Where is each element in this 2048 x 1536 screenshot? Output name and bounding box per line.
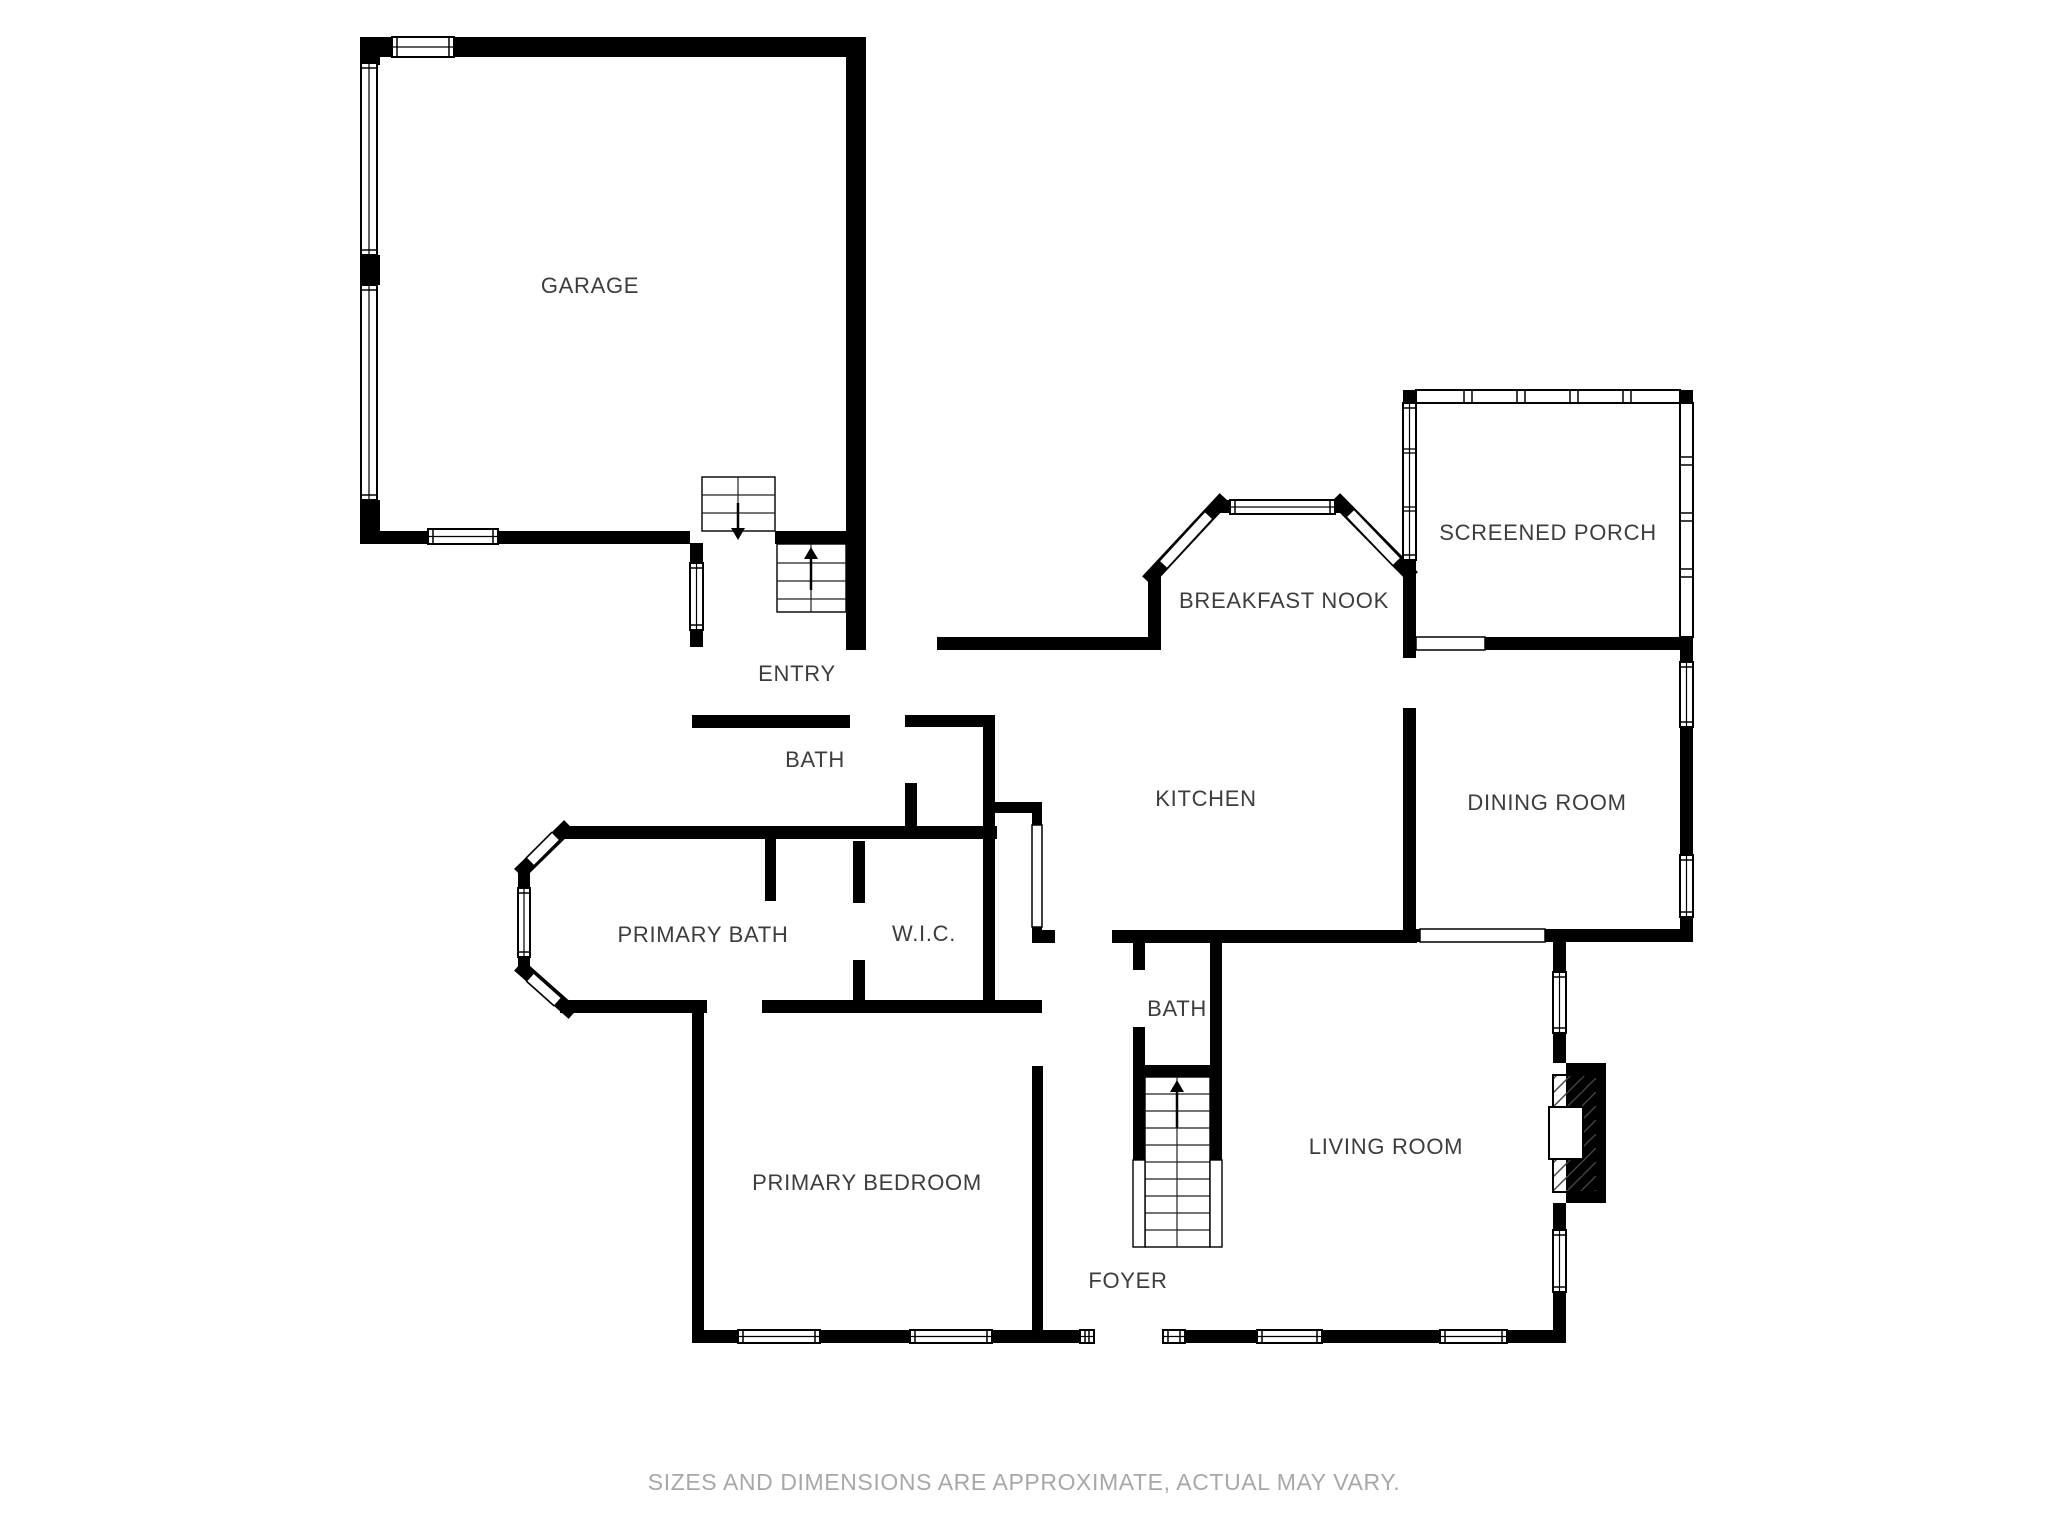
wall [692,1330,738,1343]
wall [692,1013,704,1342]
wall [560,826,997,839]
wall [917,715,993,727]
wall [1403,708,1416,942]
room-label-living-room: LIVING ROOM [1309,1134,1463,1160]
disclaimer-text: SIZES AND DIMENSIONS ARE APPROXIMATE, AC… [648,1469,1400,1496]
floor-plan: GARAGE ENTRY BATH BREAKFAST NOOK SCREENE… [0,0,2048,1536]
wall [1210,1077,1222,1160]
room-label-bath-lower: BATH [1147,996,1207,1022]
screen-wall [1416,390,1680,403]
wall [762,1000,1042,1013]
wall [905,715,917,727]
fireplace-firebox [1549,1107,1583,1159]
wall [846,37,866,650]
wall [1680,727,1693,855]
room-label-wic: W.I.C. [892,921,956,947]
wall [1032,802,1042,825]
room-label-bath-upper: BATH [785,747,845,773]
wall [1032,927,1042,943]
room-label-primary-bath: PRIMARY BATH [618,922,789,948]
wall [360,255,380,285]
room-label-breakfast-nook: BREAKFAST NOOK [1179,588,1389,614]
room-label-screened-porch: SCREENED PORCH [1439,520,1657,546]
wall [360,37,380,65]
room-label-garage: GARAGE [541,273,639,299]
wall [1133,943,1145,970]
wall [1133,1065,1222,1077]
wall [992,1330,1080,1343]
stair-arrow [731,528,745,540]
angled-window-core [1350,513,1397,562]
screen-wall [1680,403,1693,637]
wall [820,1330,910,1343]
wall [560,1000,707,1013]
wall [1112,930,1417,943]
wall [1403,390,1416,403]
floor-plan-canvas [0,0,2048,1536]
wall [1553,1203,1566,1230]
wall [1545,929,1693,942]
cased-opening [1032,825,1042,927]
wall [1485,637,1680,650]
wall [1210,943,1222,1077]
wall [853,841,865,903]
wall [775,531,846,544]
wall [1148,573,1161,650]
wall [983,715,995,839]
wall [1185,1330,1257,1343]
wall [983,839,995,1000]
cased-opening [1420,929,1545,942]
cased-opening [1416,637,1485,650]
wall [765,839,776,901]
wall [1553,942,1566,972]
room-label-kitchen: KITCHEN [1155,786,1256,812]
angled-window-core [1163,515,1209,565]
wall [1032,1066,1043,1342]
wall [1403,650,1416,658]
wall [1133,1077,1145,1160]
wall [692,715,850,728]
wall [1322,1330,1440,1343]
wall [690,543,703,563]
wall [1680,390,1693,403]
wall [690,630,703,647]
wall [1553,1292,1566,1342]
wall [1553,1033,1566,1063]
room-label-primary-bedroom: PRIMARY BEDROOM [752,1170,982,1196]
room-label-entry: ENTRY [758,661,836,687]
stair-rail [1133,1160,1145,1247]
wall [937,637,1161,650]
room-label-dining-room: DINING ROOM [1467,790,1626,816]
wall [360,531,690,544]
stair-rail [1210,1160,1222,1247]
wall [1680,650,1693,662]
room-label-foyer: FOYER [1088,1268,1167,1294]
